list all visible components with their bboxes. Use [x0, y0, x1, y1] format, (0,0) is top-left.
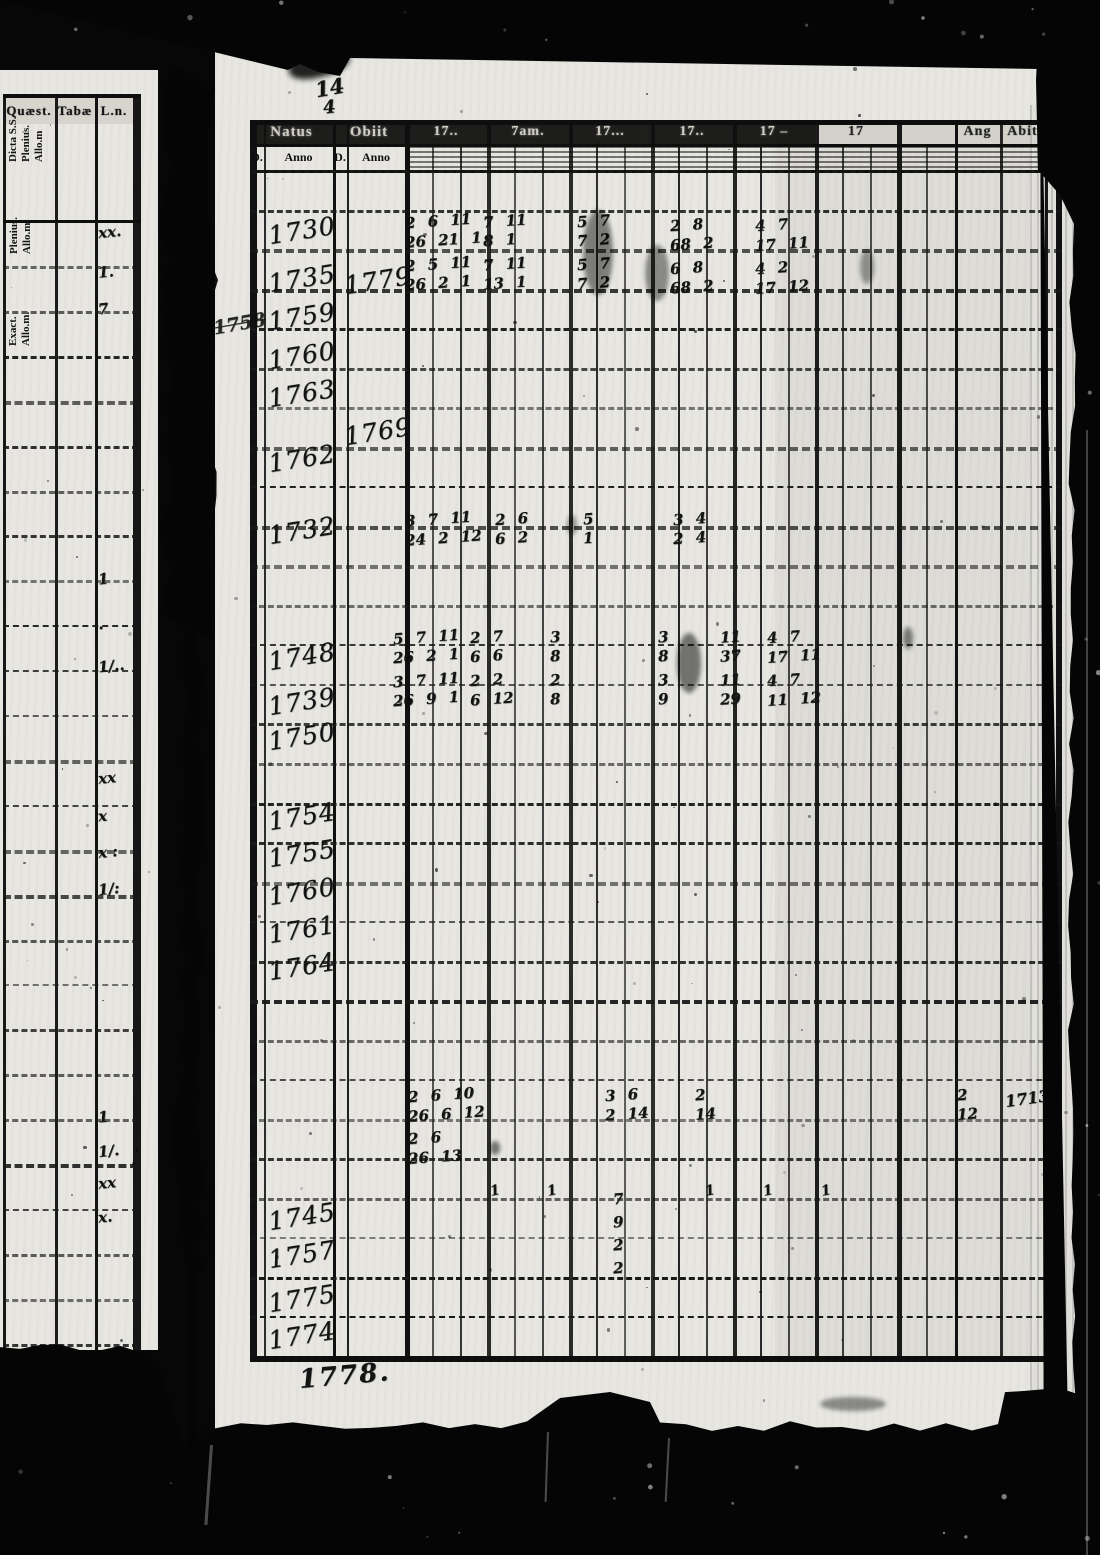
dust-speck	[275, 1255, 279, 1259]
dust-speck	[635, 427, 639, 431]
dust-speck	[872, 394, 875, 397]
figure-entry: 9	[657, 690, 669, 710]
table-rowline	[250, 685, 1062, 726]
table-rowline	[250, 448, 1062, 488]
film-speck	[403, 1507, 404, 1508]
dust-speck	[1022, 997, 1026, 1001]
figure-entry: 1	[582, 529, 594, 549]
figure-entry: 2 8	[669, 215, 703, 236]
column-digit: 2	[612, 1259, 624, 1279]
left-check-mark: 1	[97, 570, 109, 589]
table-rowline	[250, 172, 1062, 213]
dust-speck	[934, 711, 938, 715]
table-rowline	[250, 962, 1062, 1004]
figure-entry: 2 4	[672, 528, 706, 549]
table-rowline	[250, 606, 1062, 646]
figure-entry: 3	[549, 628, 561, 648]
dust-speck	[858, 114, 861, 117]
left-column-header-label: L.n.	[101, 103, 127, 119]
table-rowline	[250, 923, 1062, 964]
figure-entry: 6 12	[469, 689, 514, 711]
dust-speck	[22, 131, 24, 133]
ink-smudge	[903, 627, 913, 649]
left-table-rowline	[3, 536, 138, 583]
dust-speck	[102, 1000, 103, 1001]
ink-smudge	[645, 245, 669, 301]
dust-speck	[422, 365, 424, 367]
film-speck	[1096, 670, 1100, 675]
table-rowline	[250, 567, 1062, 608]
left-table-rowline	[3, 581, 138, 627]
film-speck	[1031, 8, 1033, 10]
dust-speck	[513, 321, 516, 324]
table-rowline	[250, 646, 1062, 686]
dust-speck	[646, 1287, 647, 1288]
film-streak	[545, 1432, 549, 1502]
film-speck	[648, 1485, 653, 1490]
film-speck	[1084, 638, 1087, 641]
table-topline	[250, 120, 1062, 125]
figure-entry: 3 4	[672, 509, 706, 530]
column-digit: 9	[612, 1213, 624, 1233]
scanned-register-page: Quæst.Dicta S.S.Plenius.Allo.mTabæPleniu…	[0, 0, 1100, 1555]
dust-speck	[607, 1328, 611, 1332]
film-speck	[980, 35, 984, 39]
dust-speck	[50, 124, 51, 125]
figure-entry: 3 6	[604, 1085, 638, 1106]
film-speck	[18, 1469, 22, 1473]
left-check-mark: x :	[97, 842, 118, 862]
left-check-mark: 1/.	[97, 1141, 120, 1161]
dust-speck	[994, 687, 997, 690]
figure-entry: 4 7	[766, 627, 800, 648]
figure-entry: 7 11	[482, 211, 527, 233]
dust-speck	[853, 67, 856, 70]
dust-speck	[148, 871, 150, 873]
dust-speck	[136, 1149, 138, 1151]
left-column-header: L.n.	[95, 98, 133, 124]
table-rowline	[250, 488, 1062, 530]
film-speck	[964, 1535, 967, 1538]
year-entry-natus: 1774	[265, 1316, 339, 1356]
dust-speck	[398, 701, 402, 705]
figure-entry: 68 2	[669, 277, 714, 299]
left-check-mark: xx	[97, 1173, 117, 1193]
table-rowline	[250, 1081, 1062, 1122]
dust-speck	[300, 1187, 303, 1190]
film-speck	[74, 28, 78, 32]
dust-speck	[267, 178, 268, 179]
dust-speck	[790, 135, 791, 136]
film-speck	[889, 0, 894, 4]
dust-speck	[689, 1164, 692, 1167]
gutter-crease-branch	[172, 1430, 196, 1530]
dust-speck	[801, 1029, 803, 1031]
dust-speck	[309, 1132, 312, 1135]
dust-speck	[234, 597, 238, 601]
left-table-rowline	[3, 985, 138, 1032]
top-annotation-line2: 4	[322, 96, 337, 118]
film-speck	[613, 1497, 616, 1500]
table-rowline	[250, 765, 1062, 806]
dust-speck	[373, 938, 375, 940]
dust-speck	[583, 395, 585, 397]
dust-speck	[934, 791, 936, 793]
dust-speck	[132, 1162, 135, 1165]
film-speck	[458, 1532, 460, 1534]
film-speck	[943, 1532, 945, 1534]
left-table-rowline	[3, 1255, 138, 1302]
left-check-mark: x	[97, 807, 108, 826]
figure-entry: 8	[657, 647, 669, 667]
table-rowline	[250, 1041, 1062, 1081]
dust-speck	[288, 91, 291, 94]
dust-speck	[1041, 1173, 1044, 1176]
left-table-rowline	[3, 447, 138, 494]
left-table-rowline	[3, 1075, 138, 1122]
left-subheader-label: Dicta S.S.	[7, 70, 19, 162]
figure-entry: 14	[694, 1104, 716, 1124]
dust-speck	[282, 178, 284, 180]
left-check-mark: 1.	[97, 262, 114, 282]
figure-entry: 8	[549, 690, 561, 710]
table-rowline	[250, 1239, 1062, 1280]
dust-speck	[83, 1146, 87, 1150]
figure-entry: 2 14	[604, 1104, 649, 1126]
left-subheader-label: Allo.m	[33, 70, 45, 162]
dust-speck	[1064, 1111, 1068, 1115]
footer-note: 1778.	[298, 1357, 392, 1395]
figure-entry: 6 8	[669, 258, 703, 279]
figure-entry: 68 2	[669, 234, 714, 256]
film-speck	[1085, 1536, 1090, 1541]
left-table-rowline	[3, 1165, 138, 1211]
table-rowline	[250, 883, 1062, 923]
table-rowline	[250, 330, 1062, 371]
dust-speck	[1072, 93, 1073, 94]
left-table-topline	[3, 94, 141, 98]
figure-entry: 2	[549, 671, 561, 691]
film-speck	[647, 1463, 652, 1468]
table-bottomline	[250, 1356, 1062, 1362]
left-subheader-label: Plenius.	[20, 70, 32, 162]
dust-speck	[604, 847, 606, 849]
left-table-rowline	[3, 896, 138, 943]
dust-speck	[931, 526, 935, 530]
dust-speck	[142, 489, 144, 491]
dust-speck	[808, 815, 811, 818]
table-rowline	[250, 1002, 1062, 1043]
film-speck	[426, 1536, 428, 1538]
gutter-crease-mid	[172, 630, 204, 1270]
table-rowline	[250, 844, 1062, 886]
figure-entry: 2 6	[407, 1128, 441, 1149]
dust-speck	[759, 1291, 762, 1294]
left-table-rowline	[3, 357, 138, 405]
figure-entry: 8	[549, 647, 561, 667]
figure-entry: 12	[956, 1104, 978, 1124]
left-check-mark: xx.	[97, 222, 122, 242]
left-check-mark: 1/:	[97, 879, 120, 899]
film-speck	[404, 11, 406, 13]
dust-speck	[460, 110, 463, 113]
dust-speck	[616, 781, 618, 783]
dust-speck	[940, 520, 943, 523]
dust-speck	[1064, 1406, 1067, 1409]
ink-smudge	[677, 633, 701, 693]
table-rowline	[250, 132, 1062, 173]
ink-smudge	[490, 1141, 500, 1155]
film-speck	[731, 1502, 734, 1505]
left-table-rowline	[3, 312, 138, 359]
film-speck	[388, 1475, 392, 1479]
dust-speck	[350, 566, 352, 568]
table-rowline	[250, 1199, 1062, 1239]
left-check-mark: 1	[97, 1108, 109, 1127]
dust-speck	[641, 1368, 644, 1371]
film-speck	[961, 31, 966, 36]
dust-speck	[716, 622, 720, 626]
film-speck	[170, 1482, 171, 1483]
table-rowline	[250, 1278, 1062, 1318]
dust-speck	[245, 773, 246, 774]
table-rowline	[250, 725, 1062, 766]
ink-smudge	[567, 515, 577, 535]
left-check-mark: 1/..	[97, 656, 125, 677]
left-table-rowline	[3, 402, 138, 449]
dust-speck	[589, 874, 592, 877]
table-rowline	[250, 1120, 1062, 1161]
left-table-rowline	[3, 671, 138, 717]
left-table-rowline	[3, 806, 138, 854]
table-rowline	[250, 527, 1062, 569]
film-speck	[1042, 32, 1045, 35]
dust-speck	[795, 974, 797, 976]
figure-entry: 2	[694, 1086, 706, 1106]
figure-entry: 29	[719, 689, 741, 709]
table-rowline	[250, 369, 1062, 410]
ink-smudge	[860, 250, 874, 284]
figure-entry: 11 12	[766, 688, 821, 711]
left-table-rowline	[3, 761, 138, 807]
left-column-header: Tabæ	[55, 98, 95, 124]
left-check-mark: x.	[97, 1207, 113, 1226]
dust-speck	[646, 93, 648, 95]
left-column-subheader: Dicta S.S.Plenius.Allo.m	[0, 70, 52, 162]
figure-entry: 2 2	[469, 670, 503, 691]
figure-entry: 4 2	[754, 258, 788, 279]
film-speck	[805, 24, 808, 27]
dust-speck	[320, 1039, 323, 1042]
figure-entry: 17 12	[754, 276, 809, 299]
figure-entry: 2	[956, 1086, 968, 1106]
left-table-rowline	[3, 940, 138, 986]
film-speck	[187, 15, 192, 20]
dust-speck	[801, 1124, 805, 1128]
figure-entry: 37	[719, 646, 741, 666]
dust-speck	[763, 1399, 765, 1401]
dust-speck	[484, 732, 487, 735]
film-speck	[921, 16, 925, 20]
film-streak	[665, 1438, 670, 1502]
dust-speck	[448, 1235, 451, 1238]
film-edge-line	[1086, 430, 1088, 1555]
gutter-crease-lower	[186, 1260, 198, 1460]
film-speck	[545, 39, 547, 41]
gutter-shadow-upper	[159, 66, 217, 640]
figure-entry: 17 11	[754, 233, 809, 256]
left-table-rowline	[3, 1300, 138, 1347]
left-column-header-label: Tabæ	[58, 103, 93, 119]
dust-speck	[89, 444, 91, 446]
left-table-rowline	[3, 267, 138, 314]
figure-entry: 11	[719, 670, 741, 690]
dust-speck	[23, 862, 25, 864]
left-table-rowline	[3, 716, 138, 764]
figure-entry: 2 7	[469, 627, 503, 648]
figure-entry: 3	[657, 671, 669, 691]
figure-entry: 3	[657, 628, 669, 648]
dust-speck	[423, 233, 426, 236]
figure-entry: 5	[582, 510, 594, 530]
film-speck	[279, 0, 283, 4]
dust-speck	[728, 149, 730, 151]
dust-speck	[489, 1268, 493, 1272]
figure-entry: 8 1	[482, 230, 516, 251]
left-check-mark: xx	[97, 768, 117, 788]
dust-speck	[11, 287, 12, 288]
film-speck	[1001, 1494, 1006, 1499]
left-check-mark: 7	[97, 300, 109, 319]
figure-entry: 2 6	[494, 509, 528, 530]
ink-smudge	[820, 1397, 886, 1411]
figure-entry: 11	[719, 627, 741, 647]
dust-speck	[76, 556, 78, 558]
ink-smudge	[583, 210, 613, 295]
figure-entry: 6 6	[469, 646, 503, 667]
main-page: 14 4 1758 1778. 1713 NatusObiit17..7am.1…	[215, 45, 1078, 1435]
dust-speck	[331, 50, 333, 52]
figure-entry: 6 2	[494, 528, 528, 549]
column-digit: 7	[612, 1190, 624, 1210]
film-speck	[503, 29, 506, 32]
figure-entry: 17 11	[766, 645, 821, 668]
gutter-crease-branch	[192, 1430, 214, 1530]
left-table-rowline	[3, 1030, 138, 1077]
column-digit: 2	[612, 1236, 624, 1256]
left-table-rowline	[3, 491, 138, 538]
dust-speck	[837, 766, 839, 768]
dust-speck	[675, 1208, 677, 1210]
left-page: Quæst.Dicta S.S.Plenius.Allo.mTabæPleniu…	[0, 70, 158, 1350]
dust-speck	[691, 983, 692, 984]
dust-speck	[762, 47, 765, 50]
figure-entry: 4 7	[766, 670, 800, 691]
film-speck	[1088, 391, 1092, 395]
dust-speck	[642, 659, 645, 662]
left-table-rowline	[3, 1210, 138, 1257]
figure-entry: 4 7	[754, 215, 788, 236]
figure-entry: 26 13	[407, 1146, 462, 1169]
film-streak	[204, 1445, 213, 1525]
film-speck	[1085, 1124, 1088, 1127]
table-rowline	[250, 1160, 1062, 1201]
film-speck	[795, 1465, 799, 1469]
figure-entry: 13 1	[482, 273, 527, 295]
table-rowline	[250, 804, 1062, 845]
dust-speck	[218, 1006, 221, 1009]
